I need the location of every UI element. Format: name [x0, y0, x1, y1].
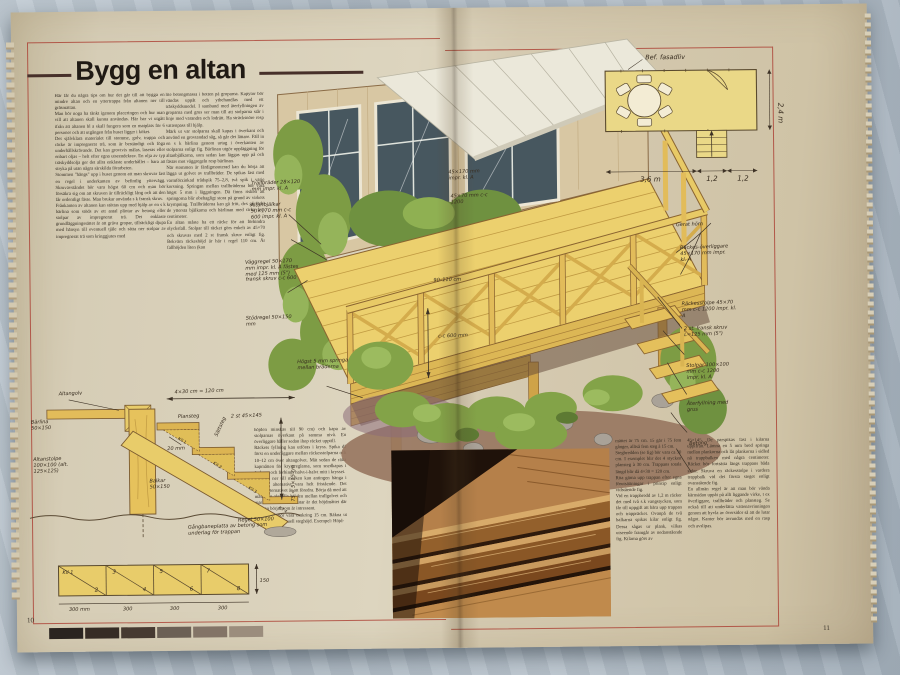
plank-height-dim: 150	[260, 578, 270, 584]
label-altanbjalkar: Altanbjälkar 50×170 mm c-c 600 impr. kl.…	[250, 202, 299, 221]
plank-cell-1: Kil 1	[63, 570, 74, 576]
plank-dim-4: 300	[218, 605, 228, 611]
plank-cell-4: 4	[143, 587, 147, 593]
torn-edge-right	[865, 13, 877, 623]
strip-swatch	[49, 628, 83, 639]
label-aterfyllning: Återfyllning med grus	[687, 400, 737, 413]
label-overhang-20mm: 20 mm	[167, 446, 185, 452]
plan-stair-dim: 1,2	[706, 174, 718, 183]
label-springa: Högst 5 mm springa mellan bräderna	[297, 358, 355, 372]
plan-side-dim: 1,2	[737, 174, 749, 183]
magazine-spread: Bygg en altan Här får du några tips om h…	[11, 4, 874, 653]
strip-swatch	[193, 626, 227, 637]
strip-swatch	[121, 627, 155, 638]
label-plansteg: Plansteg	[178, 414, 200, 421]
body-column-5: 45×145. De parspikas fast i kilarna uppi…	[687, 438, 771, 627]
page-number-right: 11	[823, 624, 830, 632]
label-trallbrader: Trallbräder 28×120 mm impr. kl. A	[251, 180, 303, 193]
label-fransk-skruv: 2 st. fransk skruv L=125 mm (5")	[684, 325, 734, 338]
photo-of-magazine-on-table: Bygg en altan Här får du några tips om h…	[0, 0, 900, 675]
label-balkar: Balkar 50×150	[149, 478, 185, 491]
plank-dim-1: 300 mm	[69, 607, 90, 613]
label-rackesoverliggare: Räckes-överliggare 45×170 mm impr. kl. A	[680, 244, 731, 263]
plank-cell-2: 2	[95, 588, 99, 594]
label-rackesstolpe: Räckesstolpe 45×70 mm c-c 1200 impr. kl.…	[682, 300, 741, 319]
strip-swatch	[157, 627, 191, 638]
label-stolpar: Stolpar 100×100 mm c-c 1200 impr. kl. A	[686, 362, 731, 381]
plank-cutting-diagram: Kil 1 2 3 4 5 6 7 8 150 300 mm 300 300 3…	[50, 556, 275, 612]
plan-width-dim: 3,6 m	[640, 174, 661, 183]
page-title: Bygg en altan	[75, 54, 246, 87]
strip-swatch	[229, 626, 263, 637]
body-column-4: måttet är 75 cm. 15 går i 75 fem gånger,…	[615, 439, 683, 628]
label-altangolv: Altangolv	[59, 391, 83, 398]
plank-dim-3: 300	[170, 606, 180, 612]
plank-cell-7: 7	[207, 568, 211, 574]
plank-cell-3: 3	[113, 569, 117, 575]
center-fold-crease	[435, 8, 480, 648]
deck-plan-diagram: Bef. fasadliv 3,6 m 1,2 1,2 2,4 m	[599, 49, 780, 186]
print-control-strip	[49, 626, 263, 639]
torn-edge-left	[6, 42, 20, 602]
plan-depth-dim: 2,4 m	[776, 103, 785, 124]
label-barlina: Bärlina 50×150	[31, 419, 67, 432]
steps-photo	[391, 448, 611, 618]
label-vaggregel: Väggregel 50×170 mm impr. kl. A fästes m…	[245, 259, 300, 284]
label-stodregel: Stödregel 50×150 mm	[246, 315, 292, 328]
body-column-1: Här får du några tips om hur det går til…	[55, 93, 168, 392]
title-rule-left	[27, 74, 71, 77]
strip-swatch	[85, 627, 119, 638]
page-number-left: 10	[27, 616, 34, 624]
plank-dim-2: 300	[123, 606, 133, 612]
plank-cell-6: 6	[190, 587, 194, 593]
plank-cell-5: 5	[160, 569, 164, 575]
plan-facade-label: Bef. fasadliv	[645, 53, 685, 61]
label-altanstolpe: Altanstolpe 100×100 (alt. 125×125)	[33, 456, 86, 475]
plank-cell-8: 8	[237, 586, 241, 592]
